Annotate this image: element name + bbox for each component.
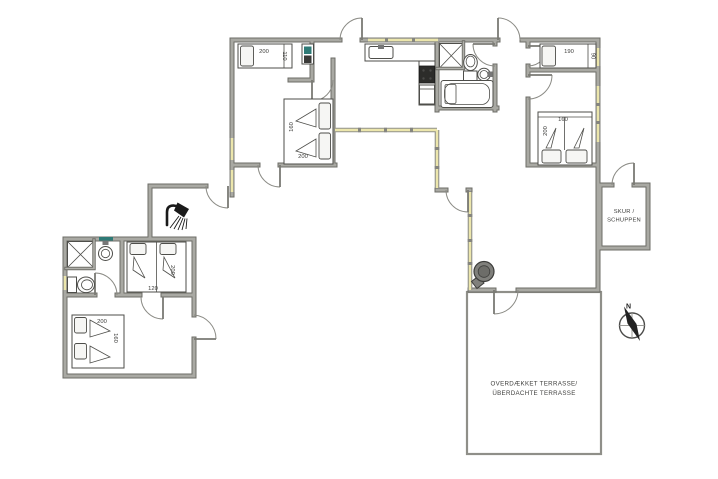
covered-terrace: OVERDÆKKET TERRASSE/ ÜBERDACHTE TERRASSE: [467, 292, 601, 454]
toilet-tank: [464, 71, 478, 81]
bedroom-a-single-bed: 200 110: [238, 44, 292, 68]
annex-bathroom: [66, 237, 113, 293]
toilet-bowl: [464, 55, 478, 71]
bed-width-label: 160: [558, 117, 568, 123]
corner-appliance: [302, 44, 314, 64]
basin-tap: [488, 72, 493, 78]
compass-rose: N: [620, 304, 645, 342]
pillow: [241, 46, 254, 66]
burner: [422, 69, 424, 71]
shed-label-da: SKUR /: [614, 209, 635, 215]
toilet-tank: [68, 277, 77, 293]
floor-plan: OVERDÆKKET TERRASSE/ ÜBERDACHTE TERRASSE: [0, 0, 718, 479]
terrace-outline: [467, 292, 601, 454]
bed-length-label: 200: [298, 154, 308, 160]
pillow: [160, 244, 176, 255]
foot-cushion: [566, 150, 587, 163]
appliance-dark-panel: [304, 56, 312, 64]
stove-top: [478, 266, 490, 278]
annex-twin-beds: 200 120: [127, 242, 186, 292]
bed-width-label: 160: [289, 122, 295, 132]
wood-stove: [472, 262, 495, 289]
burner: [422, 77, 424, 79]
terrace-label-de: ÜBERDACHTE TERRASSE: [492, 390, 575, 397]
shed-label-de: SCHUPPEN: [607, 218, 641, 224]
appliance-teal-panel: [304, 47, 312, 55]
basin-tap: [103, 241, 109, 246]
pillow: [75, 318, 87, 334]
stove-cooktop: [420, 66, 435, 83]
bed-length-label: 200: [169, 265, 175, 275]
pillow: [75, 344, 87, 360]
pillow: [319, 133, 331, 159]
main-bathroom: [437, 42, 493, 108]
bed-length-label: 200: [259, 49, 269, 55]
compass-north-label: N: [626, 304, 631, 311]
floor-plan-canvas: OVERDÆKKET TERRASSE/ ÜBERDACHTE TERRASSE: [0, 0, 718, 479]
kitchen-faucet: [378, 45, 384, 49]
pillow: [542, 46, 556, 66]
bedroom-b-single-bed: 190 90: [540, 44, 596, 68]
dishwasher: [420, 85, 435, 104]
pillow: [130, 244, 146, 255]
pillow: [319, 103, 331, 129]
bed-width-label: 160: [112, 333, 118, 343]
outdoor-shower-icon: [167, 203, 189, 231]
bathroom-mirror: [99, 237, 113, 241]
bedroom-a-double-bed: 160 200: [284, 99, 333, 164]
foot-cushion: [542, 150, 561, 163]
bed-length-label: 200: [97, 319, 107, 325]
bed-width-label: 120: [148, 286, 158, 292]
terrace-label-da: OVERDÆKKET TERRASSE/: [491, 381, 578, 388]
bedroom-c-double-bed: 160 200: [538, 112, 592, 165]
burner: [429, 77, 431, 79]
shed: SKUR / SCHUPPEN: [607, 209, 641, 224]
bed-length-label: 200: [543, 126, 549, 136]
toilet-bowl: [78, 277, 95, 293]
bed-width-label: 110: [281, 51, 287, 60]
washbasin: [99, 247, 113, 261]
bed-length-label: 190: [564, 49, 574, 55]
walls: [65, 40, 648, 376]
kitchen: [365, 44, 435, 105]
annex-double-bed: 200 160: [72, 315, 124, 368]
bed-width-label: 90: [590, 53, 596, 59]
burner: [429, 69, 431, 71]
